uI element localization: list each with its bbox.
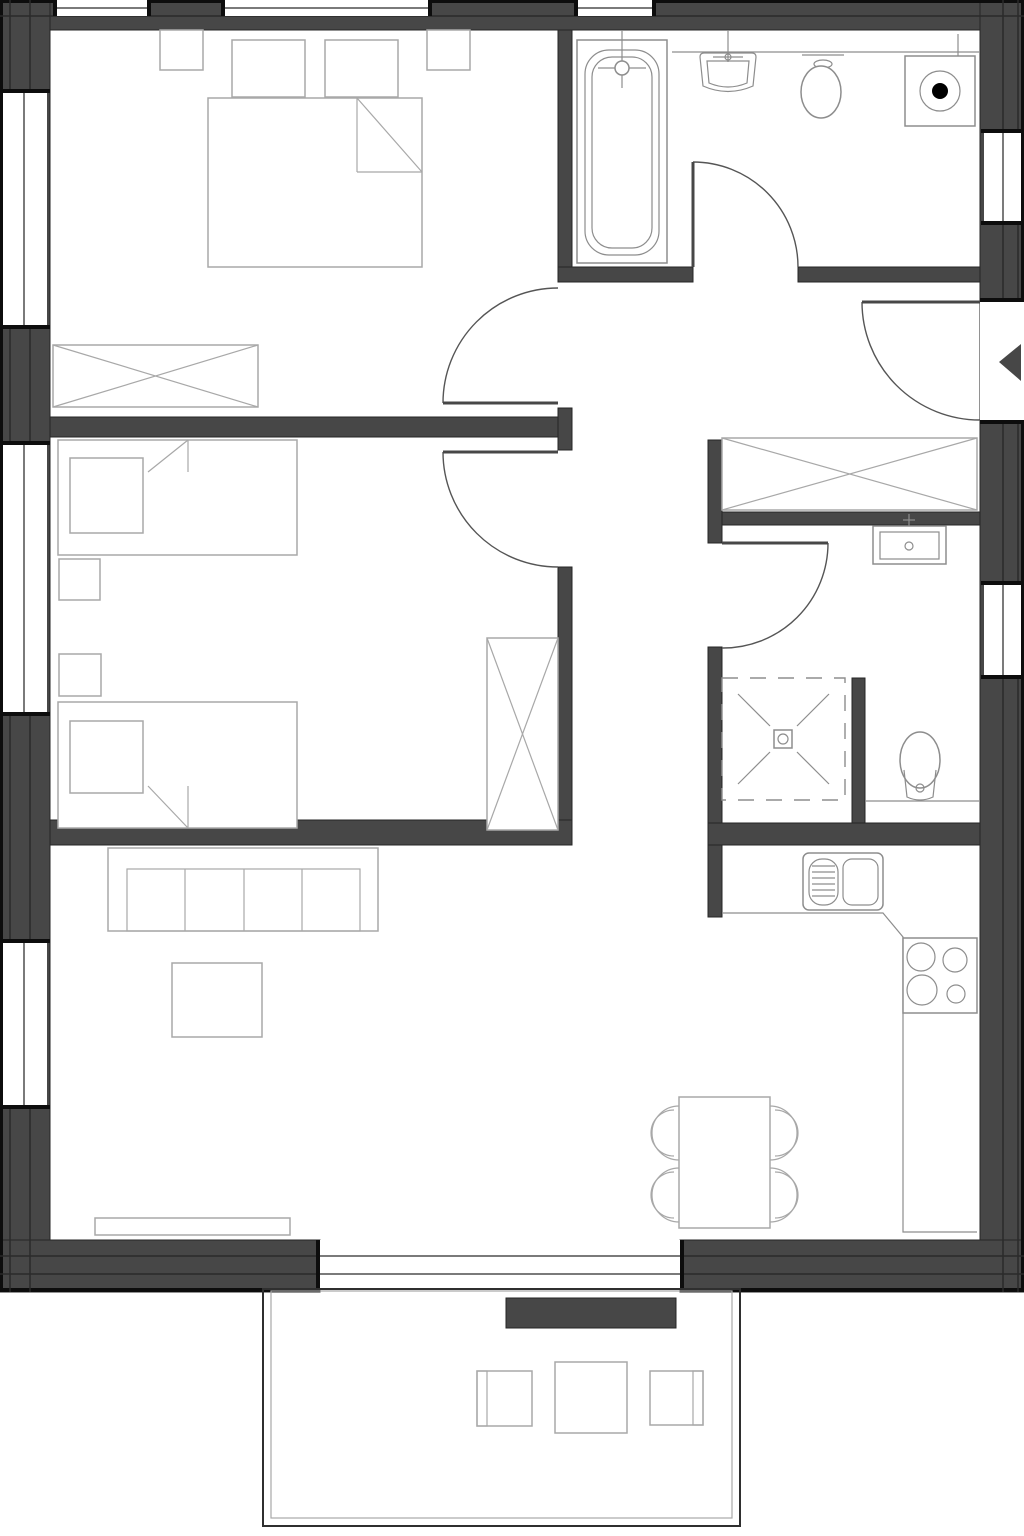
window-left-3 [3, 943, 47, 1105]
window-right-1-cap-bottom [981, 221, 1021, 225]
door-entry-arc [862, 302, 980, 420]
balcony-door-opening [320, 1240, 680, 1288]
bottom-wall-left [0, 1240, 320, 1292]
nightstand-left [160, 30, 203, 70]
door-bedroom1-arc [443, 288, 558, 403]
dining-chair-left-top [652, 1106, 679, 1160]
nightstand-bedroom2-a [59, 559, 100, 600]
shower-separator-wall [852, 678, 865, 823]
bed-double [208, 98, 422, 267]
doors [443, 162, 1021, 648]
entry-opening-cap-top [980, 298, 1024, 302]
furniture [53, 30, 977, 1235]
shower-room-fixtures [722, 514, 980, 801]
shower-diagonal-2 [797, 694, 829, 726]
window-left-2-cap-bottom [3, 712, 50, 716]
window-left-2-cap-top [3, 441, 50, 445]
stove [903, 938, 977, 1013]
bathroom-left-wall [558, 30, 572, 270]
entry-opening-cap-bottom [980, 420, 1024, 424]
nightstand-bedroom2-b [59, 654, 101, 696]
window-top-3-cap-left [574, 0, 578, 16]
closet-back-wall [722, 512, 980, 525]
dining-chair-right-top [770, 1106, 797, 1160]
shower-drain [774, 730, 792, 748]
bed-single-top-pillow [70, 458, 143, 533]
bathroom-bottom-wall-b [798, 267, 980, 282]
pillow-left [232, 40, 305, 97]
tv-sideboard [95, 1218, 290, 1235]
window-left-1-cap-bottom [3, 325, 50, 329]
window-top-1-cap-left [53, 0, 57, 16]
bedroom2-right-wall [558, 567, 572, 845]
pillow-right [325, 40, 398, 97]
toilet-bowl [801, 66, 841, 118]
window-right-2-cap-top [981, 581, 1021, 585]
hall-wall-lower [708, 647, 722, 917]
hall-wall-upper [708, 440, 722, 543]
top-edge [0, 0, 1024, 3]
door-shower-room-arc [722, 543, 828, 648]
dining-chair-left-bottom [652, 1168, 679, 1222]
sofa [108, 848, 378, 931]
window-left-3-cap-top [3, 939, 50, 943]
dining-chair-left-bottom-inner [651, 1172, 674, 1218]
top-wall [0, 0, 1024, 30]
balcony-chair-left [477, 1371, 532, 1426]
washing-machine-drum [932, 83, 948, 99]
dining-chair-right-bottom-inner [775, 1172, 798, 1218]
balcony-sliding-panel [506, 1298, 676, 1328]
window-top-3-cap-right [652, 0, 656, 16]
dining-chair-right-top-inner [775, 1110, 798, 1156]
dining-chair-left-top-inner [651, 1110, 674, 1156]
door-bathroom-arc [693, 162, 798, 267]
balcony-table [555, 1362, 627, 1433]
window-top-2-cap-left [221, 0, 225, 16]
balcony-door-cap-left [316, 1240, 320, 1288]
toilet2-bowl [900, 732, 940, 788]
corridor-stub [558, 408, 572, 450]
window-right-1-cap-top [981, 129, 1021, 133]
bottom-wall-right [680, 1240, 1024, 1292]
shower-diagonal-4 [797, 752, 829, 784]
door-bedroom2-arc [443, 452, 558, 567]
bed-single-bottom-pillow [70, 721, 143, 793]
bathtub-faucet [615, 61, 629, 75]
washbasin-inner [707, 61, 749, 87]
shower-diagonal-3 [738, 752, 770, 784]
bathroom-fixtures [577, 30, 980, 263]
left-edge [0, 0, 3, 1292]
window-left-1 [3, 93, 47, 325]
bathroom-bottom-wall-a [558, 267, 693, 282]
window-top-2-cap-right [428, 0, 432, 16]
window-right-2-cap-bottom [981, 675, 1021, 679]
bedroom1-bottom-wall [50, 417, 572, 437]
balcony-chair-right [650, 1371, 703, 1425]
window-left-1-cap-top [3, 89, 50, 93]
window-top-1-cap-right [147, 0, 151, 16]
window-left-2 [3, 445, 47, 712]
floor-plan [0, 0, 1024, 1536]
bathroom2-bottom-wall [708, 823, 980, 845]
dining-chair-right-bottom [770, 1168, 797, 1222]
shower-diagonal-1 [738, 694, 770, 726]
balcony-door-cap-right [680, 1240, 684, 1288]
coffee-table [172, 963, 262, 1037]
nightstand-right [427, 30, 470, 70]
floor-plan-canvas [0, 0, 1024, 1536]
window-left-3-cap-bottom [3, 1105, 50, 1109]
dining-table [679, 1097, 770, 1228]
